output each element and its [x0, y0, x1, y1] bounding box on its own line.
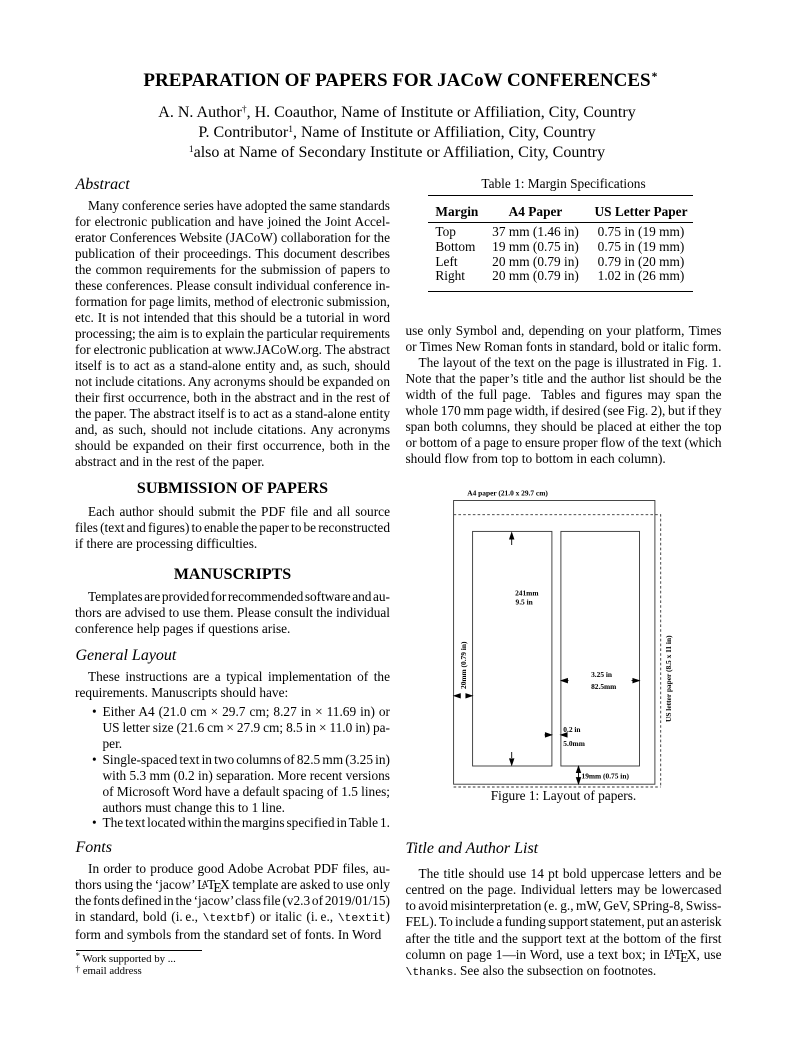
svg-text:US letter paper (8.5 x 11 in): US letter paper (8.5 x 11 in) — [664, 635, 673, 722]
svg-text:A4 paper (21.0 x 29.7 cm): A4 paper (21.0 x 29.7 cm) — [467, 488, 548, 497]
svg-text:20mm (0.79 in): 20mm (0.79 in) — [459, 641, 468, 689]
svg-text:9.5 in: 9.5 in — [516, 598, 533, 607]
svg-text:82.5mm: 82.5mm — [591, 682, 617, 691]
svg-text:5.0mm: 5.0mm — [563, 739, 585, 748]
svg-text:19mm (0.75 in): 19mm (0.75 in) — [582, 772, 630, 781]
svg-text:3.25 in: 3.25 in — [591, 670, 612, 679]
svg-text:241mm: 241mm — [515, 589, 539, 598]
